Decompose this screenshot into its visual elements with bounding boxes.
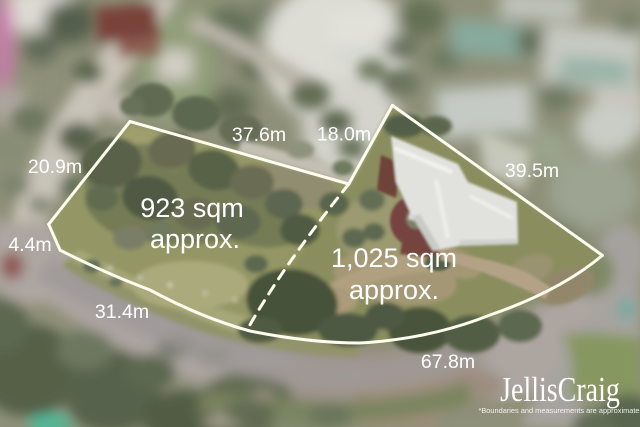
svg-text:*Boundaries and measurements a: *Boundaries and measurements are approxi…	[478, 406, 639, 415]
svg-text:67.8m: 67.8m	[421, 351, 475, 373]
svg-text:approx.: approx.	[150, 224, 240, 254]
svg-text:JellisCraig: JellisCraig	[500, 370, 620, 409]
svg-text:923 sqm: 923 sqm	[140, 193, 244, 223]
svg-text:20.9m: 20.9m	[28, 156, 82, 178]
svg-text:1,025 sqm: 1,025 sqm	[331, 243, 457, 273]
svg-text:4.4m: 4.4m	[8, 234, 51, 256]
svg-text:37.6m: 37.6m	[232, 124, 286, 146]
svg-text:39.5m: 39.5m	[505, 160, 559, 182]
svg-text:31.4m: 31.4m	[95, 301, 149, 323]
svg-text:approx.: approx.	[349, 275, 439, 305]
svg-text:18.0m: 18.0m	[317, 124, 371, 146]
